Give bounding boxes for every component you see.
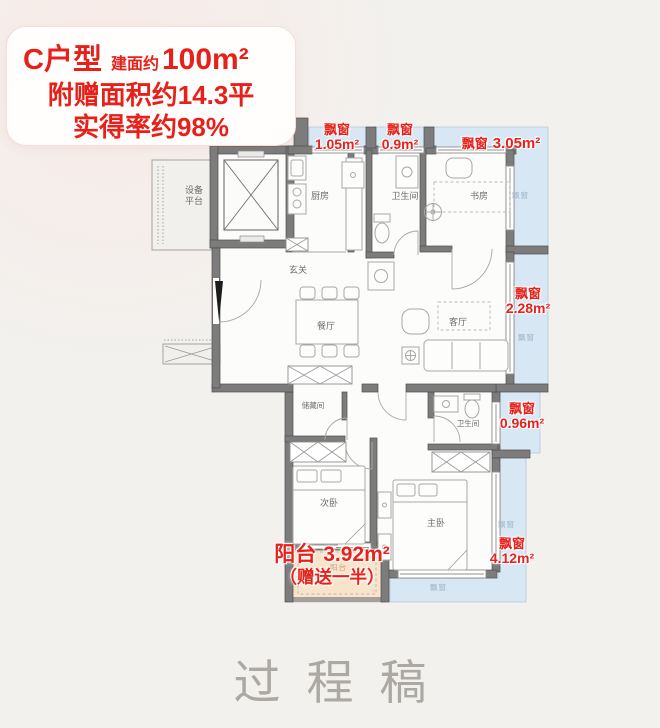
bay-zone-text: 飘窗: [512, 190, 529, 201]
balcony-annotation-note: （赠送一半）: [268, 567, 396, 588]
room-label-bath2: 卫生间: [450, 418, 486, 429]
room-label-equipment-platform: 设备平台: [183, 185, 205, 207]
bay-annotation-name: 飘窗: [462, 136, 488, 151]
bay-annotation-value: 3.05m²: [493, 135, 541, 152]
unit-info-card: C户型 建面约 100m² 附赠面积约14.3平 实得率约98%: [6, 26, 296, 146]
bay-annotation-4: 飘窗 2.28m²: [494, 286, 562, 316]
bay-annotation-value: 4.12m²: [478, 551, 546, 566]
bay-annotation-value: 0.96m²: [488, 416, 556, 431]
bay-annotation-3: 飘窗3.05m²: [446, 136, 556, 151]
room-label-bath1: 卫生间: [388, 191, 422, 202]
unit-type-label: C户型: [23, 36, 102, 78]
bay-annotation-1: 飘窗 1.05m²: [307, 122, 367, 152]
built-area-value: 100m²: [162, 43, 249, 77]
bay-annotation-value: 2.28m²: [494, 301, 562, 316]
room-label-study: 书房: [464, 191, 494, 202]
room-label-master: 主卧: [421, 518, 451, 529]
bay-annotation-name: 飘窗: [488, 401, 556, 416]
room-label-kitchen: 厨房: [305, 191, 335, 202]
bay-annotation-6: 飘窗 4.12m²: [478, 536, 546, 566]
balcony-annotation-name: 阳台: [274, 543, 316, 566]
bay-annotation-name: 飘窗: [370, 122, 430, 137]
bay-annotation-name: 飘窗: [307, 122, 367, 137]
bay-zone-text: 飘窗: [430, 582, 447, 593]
bay-annotation-value: 1.05m²: [307, 137, 367, 152]
room-label-dining: 餐厅: [311, 321, 341, 332]
bay-annotation-5: 飘窗 0.96m²: [488, 401, 556, 431]
balcony-annotation: 阳台3.92m² （赠送一半）: [268, 543, 396, 588]
bay-zone-text: 飘窗: [518, 332, 535, 343]
bay-annotation-value: 0.9m²: [370, 137, 430, 152]
balcony-annotation-value: 3.92m²: [323, 543, 390, 566]
bay-annotation-2: 飘窗 0.9m²: [370, 122, 430, 152]
room-label-bedroom2: 次卧: [314, 498, 344, 509]
unit-info-row1: C户型 建面约 100m²: [7, 27, 295, 78]
watermark-text: 过程稿: [0, 644, 660, 713]
bonus-area-line: 附赠面积约14.3平: [7, 79, 295, 111]
bay-annotation-name: 飘窗: [478, 536, 546, 551]
bay-annotation-name: 飘窗: [494, 286, 562, 301]
room-label-living: 客厅: [443, 317, 473, 328]
efficiency-line: 实得率约98%: [7, 111, 295, 143]
room-label-foyer: 玄关: [283, 265, 313, 276]
built-area-label: 建面约: [111, 50, 159, 74]
bay-zone-text: 飘窗: [498, 519, 515, 530]
room-label-storage: 储藏间: [293, 400, 333, 411]
floor-plan-page: 设备平台 厨房 卫生间 书房 玄关 餐厅 客厅 储藏间 次卧 卫生间 主卧 飘窗…: [0, 0, 660, 728]
ac-platform: [163, 340, 220, 364]
